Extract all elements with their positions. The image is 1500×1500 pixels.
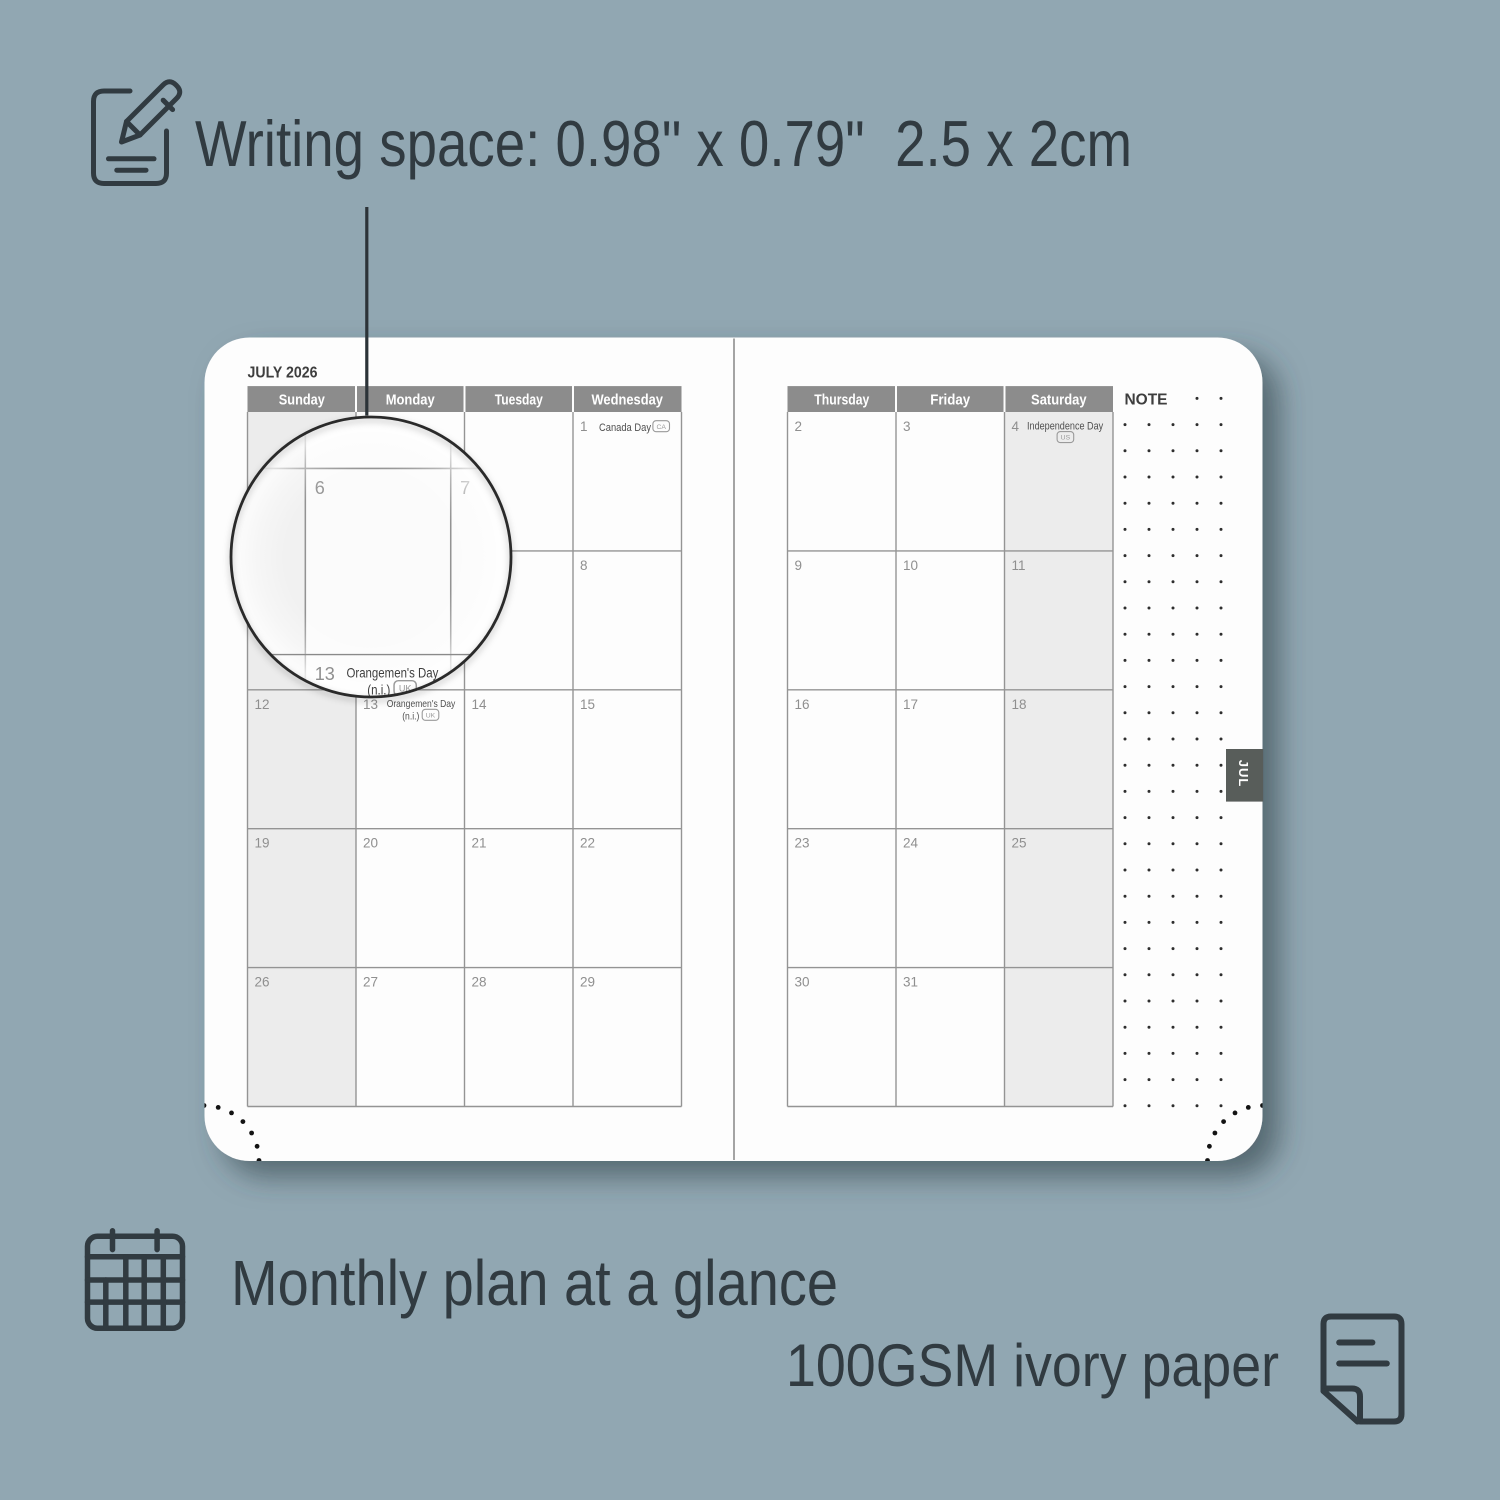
svg-text:13: 13 [363,697,378,712]
svg-text:29: 29 [580,975,595,990]
svg-text:1: 1 [580,419,588,434]
svg-text:Thursday: Thursday [814,392,870,409]
svg-text:JUL: JUL [1236,760,1251,788]
svg-text:UK: UK [426,712,436,719]
svg-text:25: 25 [1012,836,1027,851]
svg-text:Orangemen's Day: Orangemen's Day [346,665,438,681]
svg-text:13: 13 [315,664,335,684]
svg-text:Friday: Friday [930,392,971,409]
svg-text:Orangemen's Day: Orangemen's Day [387,698,456,710]
svg-text:Monday: Monday [386,392,436,409]
svg-text:NOTE: NOTE [1125,392,1168,409]
svg-text:16: 16 [795,697,810,712]
svg-text:Independence Day: Independence Day [1027,421,1104,433]
svg-text:12: 12 [255,697,270,712]
svg-text:Monthly plan at a glance: Monthly plan at a glance [231,1247,838,1319]
svg-text:18: 18 [1012,697,1027,712]
svg-text:28: 28 [472,975,487,990]
svg-text:100GSM ivory paper: 100GSM ivory paper [786,1332,1279,1399]
svg-text:JULY 2026: JULY 2026 [248,365,318,382]
svg-text:Tuesday: Tuesday [495,392,544,409]
svg-text:17: 17 [903,697,918,712]
svg-text:10: 10 [903,558,918,573]
svg-text:15: 15 [580,697,595,712]
svg-text:Saturday: Saturday [1031,392,1087,409]
svg-text:23: 23 [795,836,810,851]
svg-text:14: 14 [472,697,488,712]
svg-text:8: 8 [580,558,588,573]
svg-text:27: 27 [363,975,378,990]
svg-text:Sunday: Sunday [279,392,326,409]
svg-text:2: 2 [795,419,803,434]
svg-text:CA: CA [656,424,666,431]
svg-text:24: 24 [903,836,919,851]
svg-text:Canada Day: Canada Day [599,422,651,434]
svg-text:11: 11 [1012,558,1026,573]
svg-text:30: 30 [795,975,810,990]
svg-text:4: 4 [1012,419,1020,434]
svg-text:Wednesday: Wednesday [591,392,663,409]
svg-text:31: 31 [903,975,918,990]
svg-text:Writing space: 0.98" x 0.79": Writing space: 0.98" x 0.79" 2.5 x 2cm [195,107,1132,180]
svg-text:20: 20 [363,836,378,851]
svg-text:26: 26 [255,975,270,990]
svg-text:22: 22 [580,836,595,851]
svg-text:21: 21 [472,836,487,851]
svg-text:3: 3 [903,419,911,434]
svg-text:US: US [1061,435,1071,442]
svg-text:(n.i.): (n.i.) [402,711,419,723]
svg-text:19: 19 [255,836,270,851]
svg-text:9: 9 [795,558,803,573]
